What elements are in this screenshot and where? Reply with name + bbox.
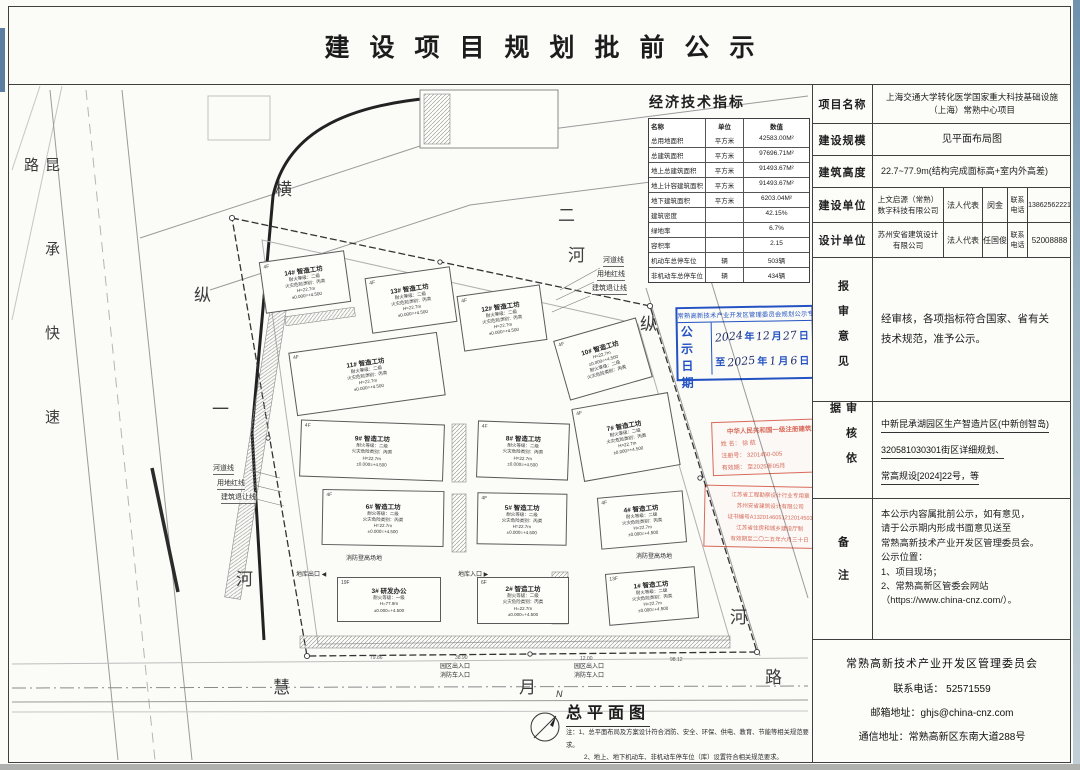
publicity-date-stamp: 常熟高新技术产业开发区管理委员会规划公示专用章 公示 日期 2024 年 12 … — [675, 305, 812, 381]
unit-month: 月 — [778, 352, 788, 367]
scale-label: 建设规模 — [813, 124, 873, 155]
park-entrance-label-2: 园区出入口 消防车入口 — [574, 663, 604, 681]
eco-table: 名称 单位 数值 总用地面积平方米42583.00M²总建筑面积平方米97696… — [648, 118, 810, 283]
basis-line-1: 中新昆承湖园区生产智造片区(中新创智岛) — [881, 417, 1049, 433]
eco-cell: 平方米 — [706, 148, 744, 162]
dimension-text: 79.86 — [370, 655, 383, 661]
stamp-gongshi: 公示 — [681, 323, 712, 358]
remark-text: 本公示内容属批前公示，如有意见， 请于公示期内形成书面意见送至 常熟高新技术产业… — [873, 499, 1071, 639]
seal-line: 江苏省住房和城乡建设厅制 — [706, 523, 812, 534]
building-floors: 4F — [558, 341, 565, 348]
unit-year: 年 — [744, 328, 754, 343]
building-floors: 4F — [369, 280, 376, 287]
eco-cell: 2.15 — [744, 238, 809, 252]
eco-row: 地下建筑面积平方米6203.04M² — [649, 192, 809, 207]
title-bar: 建设项目规划批前公示 — [8, 6, 1071, 85]
east-river-he: 河 — [730, 603, 747, 628]
eco-cell: 42583.00M² — [744, 133, 809, 147]
scan-edge-bottom — [0, 764, 1080, 770]
eco-cell: 平方米 — [706, 178, 744, 192]
building-b2: 6F2# 智造工坊耐火等级：二级 火灾危险类别：丙类 H=22.7m ±0.00… — [477, 577, 569, 624]
eco-cell: 6.7% — [744, 223, 809, 237]
building-floors: 6F — [481, 580, 487, 586]
river-label-he: 河 — [568, 241, 585, 266]
eco-row: 总用地面积平方米42583.00M² — [649, 133, 809, 147]
designer-company: 苏州安省建筑设计 有限公司 — [873, 223, 944, 257]
height-value: 22.7~77.9m(结构完成面标高+室内外高差) — [873, 156, 1071, 187]
svg-text:N: N — [556, 689, 563, 699]
unit-day: 日 — [799, 327, 809, 342]
eco-cell: 辆 — [706, 253, 744, 267]
page-title: 建设项目规划批前公示 — [304, 28, 774, 64]
eco-cell: 总用地面积 — [649, 133, 706, 147]
unit-day: 日 — [799, 352, 809, 367]
builder-tel-label: 联系 电话 — [1008, 188, 1028, 222]
eco-row: 机动车总停车位辆503辆 — [649, 252, 809, 267]
design-firm-seal-stamp: 江苏省工程勘察设计行业专用章 苏州安省建筑设计有限公司 证书编号A1320146… — [703, 485, 812, 550]
builder-rep-label: 法人代表 — [944, 188, 983, 222]
south-road-hui: 慧 — [273, 673, 290, 698]
eco-cell: 地下建筑面积 — [649, 193, 706, 207]
designer-tel-label: 联系 电话 — [1008, 223, 1028, 257]
building-details: 耐火等级：二级 火灾危险类别：丙类 H=22.7m ±0.000=+4.500 — [346, 364, 389, 394]
dimension-text: 98.12 — [670, 657, 683, 663]
notice-sheet: 建设项目规划批前公示 — [0, 0, 1080, 770]
building-name: 6# 智造工坊 — [366, 501, 401, 512]
stamp-riqi: 日期 — [681, 357, 712, 392]
eco-header-name: 名称 — [649, 119, 706, 133]
building-details: 耐火等级：二级 火灾危险类别：丙类 H=22.7m ±0.000=+4.500 — [362, 511, 403, 536]
building-floors: 4F — [481, 495, 487, 501]
legend-title: 总平面图 — [566, 699, 650, 727]
eco-cell: 总建筑面积 — [649, 148, 706, 162]
dimension-text: 38.90 — [455, 655, 468, 661]
setback-line-label: 建筑退让线 — [592, 283, 627, 295]
building-b8: 4F8# 智造工坊耐火等级：二级 火灾危险类别：丙类 H=22.7m ±0.00… — [476, 420, 570, 480]
building-b4: 4F4# 智造工坊耐火等级：二级 火灾危险类别：丙类 H=22.7m ±0.00… — [597, 490, 687, 549]
building-floors: 4F — [293, 354, 300, 361]
eco-cell — [706, 208, 744, 222]
garage-exit-label: 地库出口 ◀ — [296, 571, 326, 580]
eco-cell: 非机动车总停车位 — [649, 268, 706, 282]
building-floors: 4F — [326, 492, 332, 498]
fire-ladder-field-label-2: 消防登高场地 — [636, 553, 672, 562]
scan-edge-sliver — [0, 28, 5, 92]
river-line-label-west: 河道线 — [213, 463, 234, 475]
building-details: 耐火等级：一级 H=77.9m ±0.000=+4.500 — [373, 595, 405, 613]
stamp-year-end: 2025 — [727, 354, 756, 370]
eco-cell: 91493.67M² — [744, 178, 809, 192]
north-arrow-icon — [531, 713, 559, 741]
eco-row: 容积率2.15 — [649, 237, 809, 252]
footer-org: 常熟高新技术产业开发区管理委员会 — [846, 655, 1038, 671]
river-line-label: 河道线 — [603, 255, 624, 267]
builder-tel: 13862562221 — [1028, 188, 1071, 222]
building-floors: 4F — [482, 424, 488, 430]
builder-rep: 闵金 — [983, 188, 1008, 222]
eco-header-unit: 单位 — [706, 119, 744, 133]
building-floors: 4F — [576, 410, 583, 417]
seal-line: 有效期： 至2025年05月 — [716, 459, 812, 472]
building-details: 耐火等级：二级 火灾危险类别：丙类 H=22.7m ±0.000=+4.500 — [631, 587, 673, 615]
building-b3: 19F3# 研发办公耐火等级：一级 H=77.9m ±0.000=+4.500 — [337, 577, 441, 622]
river-label-heng: 横 — [275, 175, 292, 200]
seal-line: 有效期至二〇二五年六月三十日 — [705, 534, 812, 545]
scale-value: 见平面布局图 — [873, 124, 1071, 155]
info-panel: 项目名称 上海交通大学转化医学国家重大科技基础设施 （上海）常熟中心项目 建设规… — [812, 85, 1071, 763]
seal-line: 中华人民共和国一级注册建筑师 — [714, 422, 812, 436]
eco-cell: 辆 — [706, 268, 744, 282]
opinion-label: 报审意见 — [813, 258, 873, 401]
economic-indicators: 经济技术指标 名称 单位 数值 总用地面积平方米42583.00M²总建筑面积平… — [645, 90, 811, 283]
panel-footer: 常熟高新技术产业开发区管理委员会 联系电话： 52571559 邮箱地址：ghj… — [813, 640, 1071, 743]
eco-cell: 503辆 — [744, 253, 809, 267]
red-line-label: 用地红线 — [597, 269, 625, 281]
eco-cell: 地上总建筑面积 — [649, 163, 706, 177]
building-details: 耐火等级：二级 火灾危险类别：丙类 H=22.7m ±0.000=+4.500 — [284, 272, 327, 302]
unit-year: 年 — [757, 353, 767, 368]
project-name-value: 上海交通大学转化医学国家重大科技基础设施 （上海）常熟中心项目 — [873, 85, 1071, 123]
eco-cell: 建筑密度 — [649, 208, 706, 222]
seal-line: 苏州安省建筑设计有限公司 — [706, 500, 812, 511]
eco-row: 绿地率6.7% — [649, 222, 809, 237]
building-name: 5# 智造工坊 — [505, 502, 540, 513]
designer-rep-label: 法人代表 — [944, 223, 983, 257]
stamp-to: 至 — [715, 353, 725, 368]
river-label-er: 二 — [558, 201, 575, 226]
eco-cell: 97696.71M² — [744, 148, 809, 162]
building-floors: 19F — [341, 580, 350, 586]
building-details: 耐火等级：二级 火灾危险类别：丙类 H=22.7m ±0.000=+4.500 — [503, 593, 544, 617]
footer-tel: 联系电话： 52571559 — [893, 680, 990, 695]
eco-header-row: 名称 单位 数值 — [649, 119, 809, 133]
footer-email: 邮箱地址：ghjs@china-cnz.com — [871, 704, 1014, 719]
eco-row: 非机动车总停车位辆434辆 — [649, 267, 809, 282]
legend-note-1: 注：1、总平面布局及方案设计符合消防、安全、环保、供电、教育、节能等相关规范要求… — [566, 729, 809, 749]
building-details: 耐火等级：二级 火灾危险类别：丙类 H=22.7m ±0.000=+4.500 — [502, 443, 543, 469]
building-b5: 4F5# 智造工坊耐火等级：二级 火灾危险类别：丙类 H=22.7m ±0.00… — [477, 492, 568, 546]
eco-cell — [706, 238, 744, 252]
building-b13: 4F13# 智造工坊耐火等级：二级 火灾危险类别：丙类 H=22.7m ±0.0… — [365, 266, 458, 333]
stamp-day-end: 6 — [790, 354, 798, 368]
eco-table-body: 总用地面积平方米42583.00M²总建筑面积平方米97696.71M²地上总建… — [649, 133, 809, 282]
building-b1: 13F1# 智造工坊耐火等级：二级 火灾危险类别：丙类 H=22.7m ±0.0… — [605, 566, 699, 626]
building-floors: 13F — [609, 576, 618, 583]
stamp-month-start: 12 — [755, 329, 770, 343]
eco-cell: 地上计容建筑面积 — [649, 178, 706, 192]
stamp-year-start: 2024 — [714, 329, 743, 345]
eco-cell: 平方米 — [706, 193, 744, 207]
building-floors: 4F — [461, 298, 468, 305]
footer-addr: 通信地址：常熟高新区东南大道288号 — [859, 728, 1026, 743]
building-name: 3# 研发办公 — [371, 585, 406, 595]
fire-ladder-field-label-1: 消防登高场地 — [346, 555, 382, 564]
builder-label: 建设单位 — [813, 188, 873, 222]
eco-row: 总建筑面积平方米97696.71M² — [649, 147, 809, 162]
seal-line: 证书编号A1320146051212014503 — [706, 512, 812, 523]
building-b9: 4F9# 智造工坊耐火等级：二级 火灾危险类别：丙类 H=22.7m ±0.00… — [299, 420, 445, 482]
basis-line-3: 常高规设[2024]22号，等 — [881, 469, 979, 485]
building-details: 耐火等级：二级 火灾危险类别：丙类 H=22.7m ±0.000=+4.500 — [351, 443, 392, 469]
seal-line: 姓 名： 徐 航 — [715, 435, 812, 448]
west-river-zong: 纵 — [194, 281, 211, 306]
basis-line-2: 320581030301街区详细规划、 — [881, 443, 1004, 459]
building-details: 耐火等级：二级 火灾危险类别：丙类 H=22.7m ±0.000=+4.500 — [481, 308, 524, 338]
road-label-kuncheng-expressway: 昆承快速路 — [20, 157, 62, 557]
eco-cell: 91493.67M² — [744, 163, 809, 177]
eco-cell: 6203.04M² — [744, 193, 809, 207]
seal-line: 江苏省工程勘察设计行业专用章 — [706, 489, 812, 500]
west-river-yi: 一 — [212, 395, 229, 420]
designer-tel: 52008888 — [1028, 223, 1071, 257]
building-b6: 4F6# 智造工坊耐火等级：二级 火灾危险类别：丙类 H=22.7m ±0.00… — [322, 489, 445, 547]
building-floors: 4F — [263, 264, 270, 271]
designer-rep: 任国俊 — [983, 223, 1008, 257]
eco-title: 经济技术指标 — [649, 92, 811, 112]
project-name-label: 项目名称 — [813, 85, 873, 123]
eco-row: 地上计容建筑面积平方米91493.67M² — [649, 177, 809, 192]
stamp-day-start: 27 — [783, 329, 798, 343]
opinion-text: 经审核，各项指标符合国家、省有关 技术规范，准予公示。 — [873, 258, 1071, 401]
eco-cell — [706, 223, 744, 237]
building-floors: 4F — [305, 423, 311, 429]
east-river-zong: 纵 — [640, 310, 657, 335]
south-road-yue: 月 — [519, 673, 536, 698]
unit-month: 月 — [772, 327, 782, 342]
height-label: 建筑高度 — [813, 156, 873, 187]
eco-row: 建筑密度42.15% — [649, 207, 809, 222]
building-floors: 4F — [601, 500, 607, 506]
building-details: 耐火等级：二级 火灾危险类别：丙类 H=22.7m ±0.000=+4.500 — [501, 512, 542, 537]
legend-notes: 注：1、总平面布局及方案设计符合消防、安全、环保、供电、教育、节能等相关规范要求… — [566, 727, 812, 763]
stamp-month-end: 1 — [769, 354, 777, 368]
park-entrance-label-1: 园区出入口 消防车入口 — [440, 663, 470, 681]
eco-cell: 42.15% — [744, 208, 809, 222]
legend-note-2: 2、地上、地下机动车、非机动车停车位（库）设置符合相关规范要求。 — [566, 754, 783, 761]
basis-label: 审核依据 — [813, 402, 873, 498]
dimension-text: 12.00 — [580, 656, 593, 662]
scan-edge-right — [1073, 0, 1080, 770]
eco-row: 地上总建筑面积平方米91493.67M² — [649, 162, 809, 177]
designer-label: 设计单位 — [813, 223, 873, 257]
eco-header-value: 数值 — [744, 119, 809, 133]
red-line-label-west: 用地红线 — [217, 478, 245, 490]
building-details: 耐火等级：二级 火灾危险类别：丙类 H=22.7m ±0.000=+4.500 — [621, 511, 663, 539]
architect-seal-stamp: 中华人民共和国一级注册建筑师 姓 名： 徐 航 注册号： 3201450-005… — [711, 418, 812, 476]
building-b12: 4F12# 智造工坊耐火等级：二级 火灾危险类别：丙类 H=22.7m ±0.0… — [457, 284, 548, 351]
eco-cell: 434辆 — [744, 268, 809, 282]
building-name: 2# 智造工坊 — [505, 583, 540, 593]
eco-cell: 平方米 — [706, 133, 744, 147]
eco-cell: 绿地率 — [649, 223, 706, 237]
building-details: 耐火等级：二级 火灾危险类别：丙类 H=22.7m ±0.000=+4.500 — [390, 290, 433, 320]
seal-line: 注册号： 3201450-005 — [715, 447, 812, 460]
west-river-he: 河 — [236, 565, 253, 590]
builder-company: 上文启源（常熟） 数字科技有限公司 — [873, 188, 944, 222]
south-road-lu: 路 — [765, 663, 782, 688]
eco-cell: 机动车总停车位 — [649, 253, 706, 267]
setback-line-label-west: 建筑退让线 — [221, 492, 256, 504]
eco-cell: 容积率 — [649, 238, 706, 252]
eco-cell: 平方米 — [706, 163, 744, 177]
remark-label: 备注 — [813, 499, 873, 639]
